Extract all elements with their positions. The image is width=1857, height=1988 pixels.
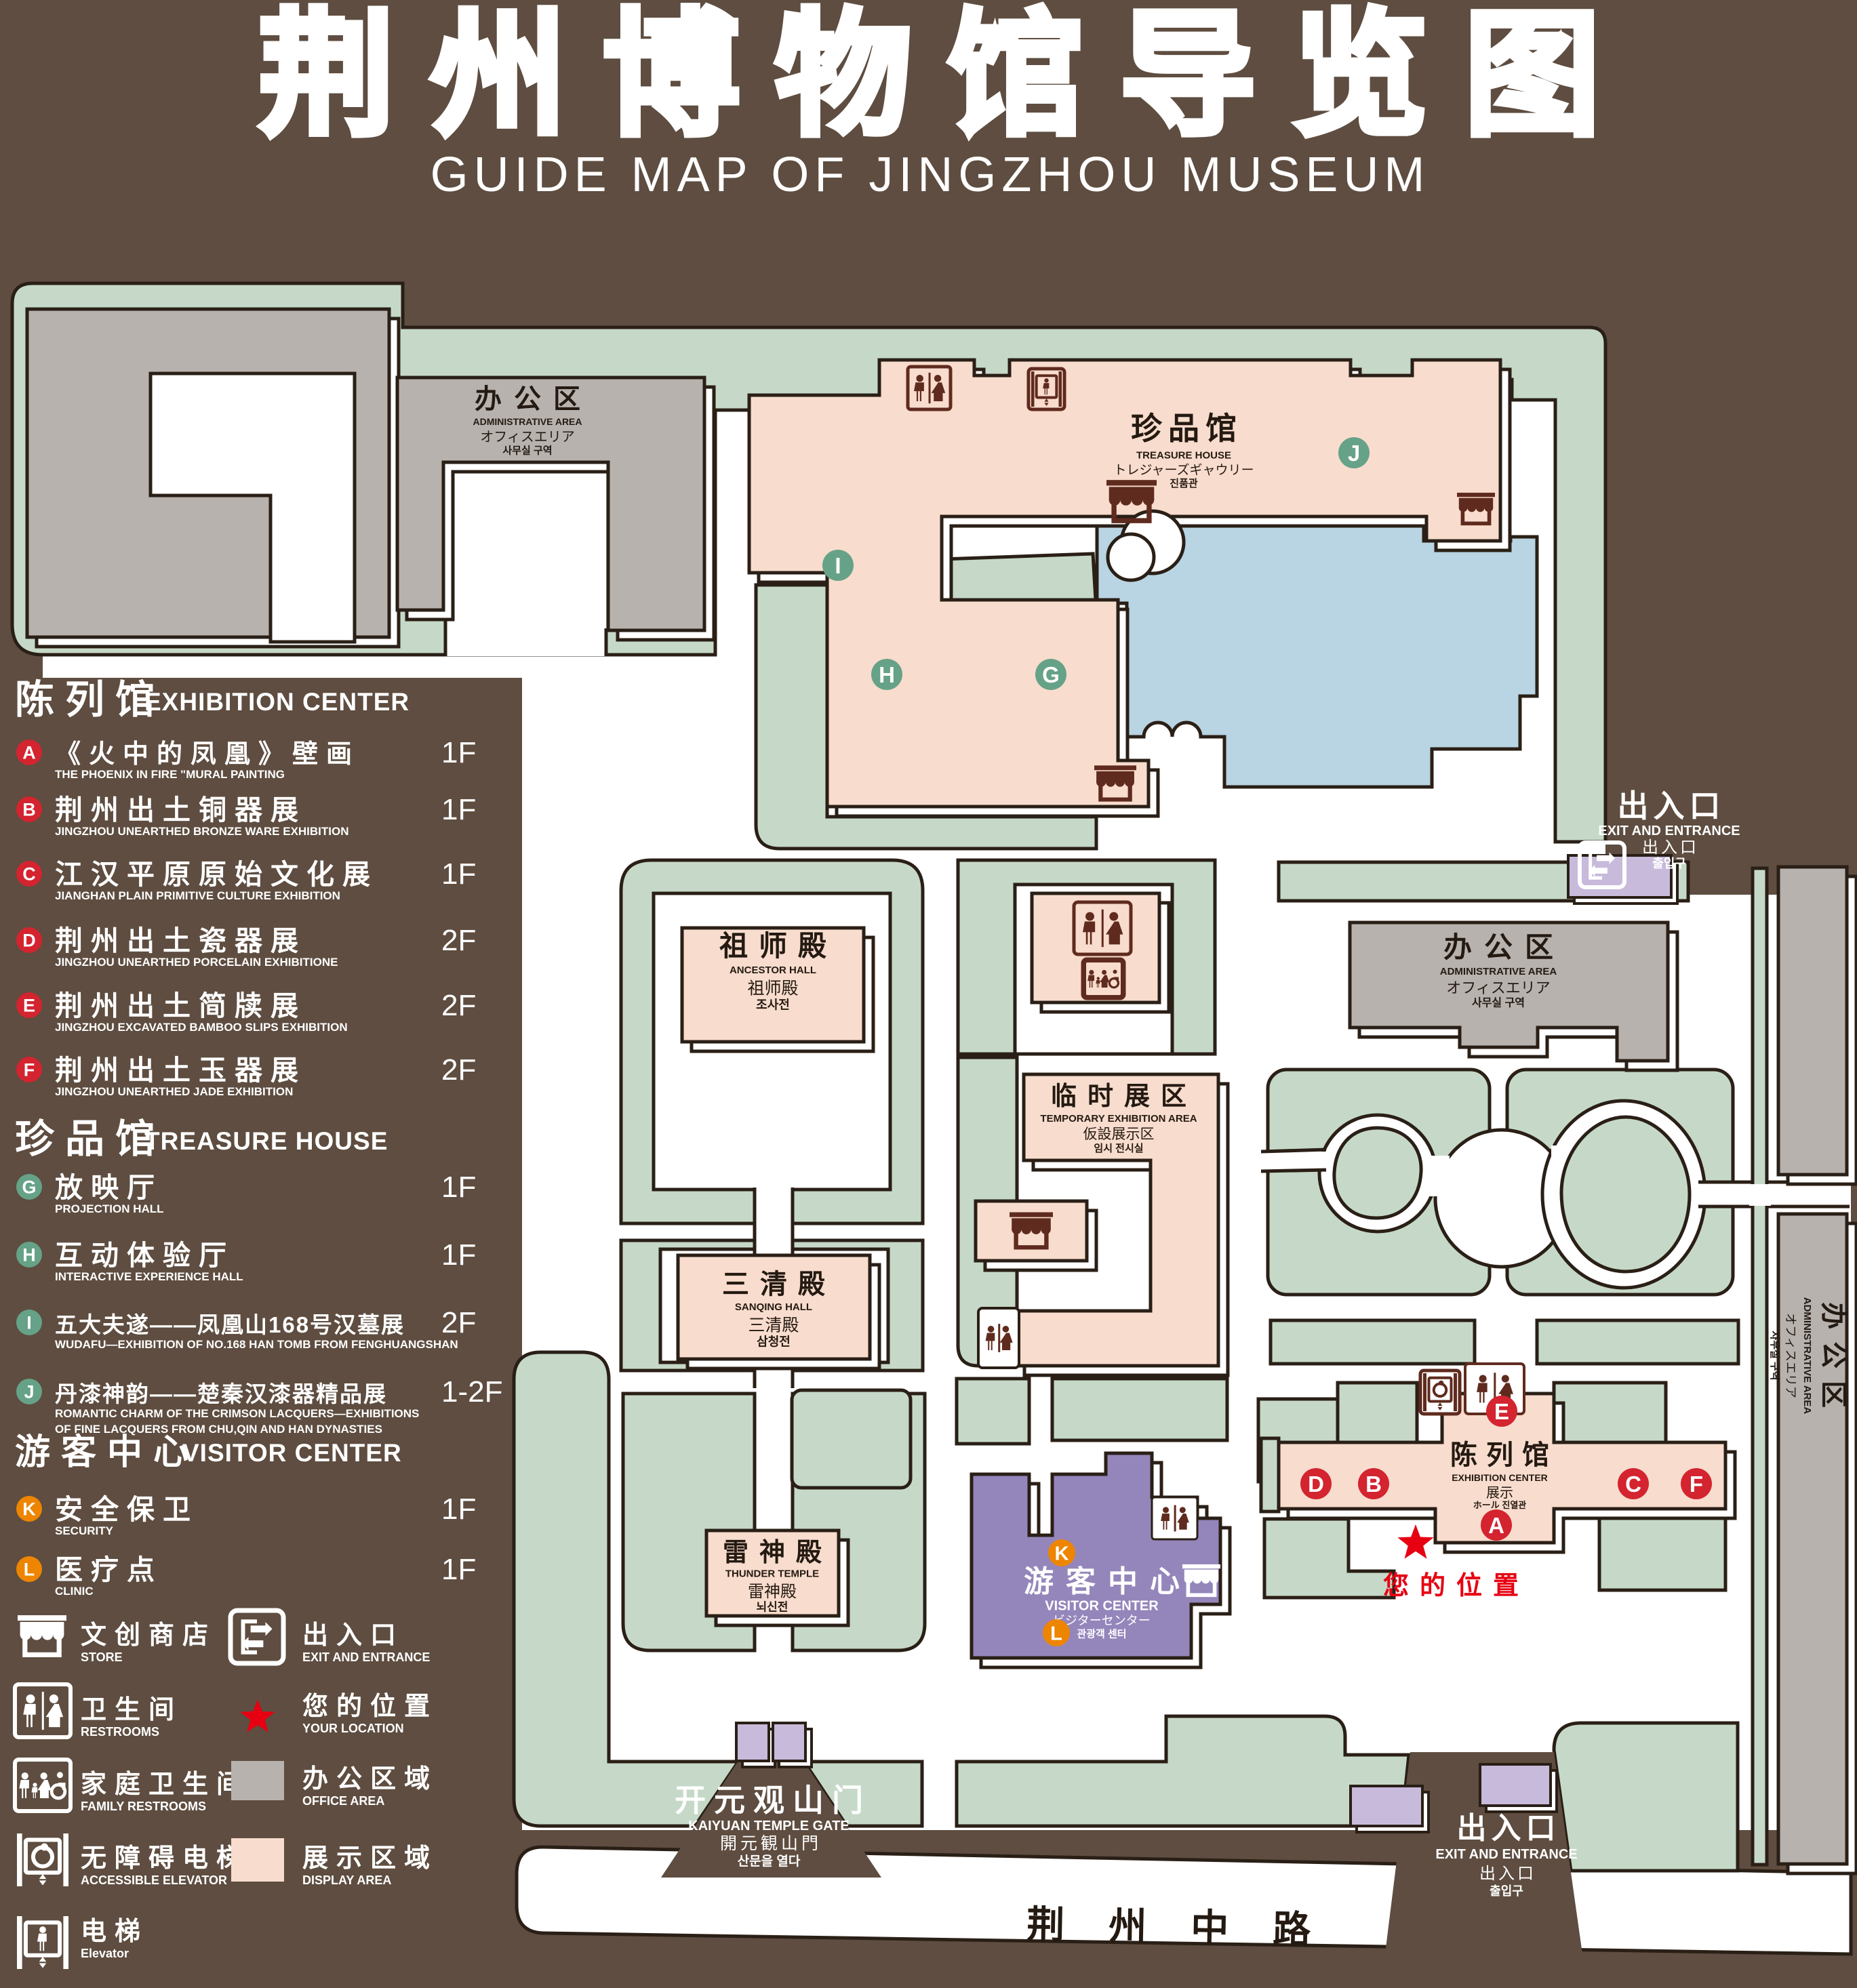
svg-text:展示: 展示 [1486, 1486, 1513, 1501]
svg-text:ADMINISTRATIVE AREA: ADMINISTRATIVE AREA [473, 416, 582, 427]
svg-text:游客中心: 游客中心 [1024, 1565, 1192, 1598]
svg-text:RESTROOMS: RESTROOMS [81, 1725, 159, 1739]
svg-text:사무실 구역: 사무실 구역 [1472, 996, 1525, 1009]
svg-text:THUNDER TEMPLE: THUNDER TEMPLE [725, 1568, 819, 1580]
svg-text:2F: 2F [441, 924, 476, 957]
svg-text:JINGZHOU UNEARTHED PORCELAIN E: JINGZHOU UNEARTHED PORCELAIN EXHIBITIONE [55, 956, 338, 969]
svg-text:E: E [1494, 1399, 1509, 1424]
svg-text:出入口: 出入口 [1642, 838, 1699, 857]
svg-text:출입구: 출입구 [1652, 856, 1686, 870]
svg-text:出入口: 出入口 [1457, 1812, 1561, 1845]
svg-text:ANCESTOR HALL: ANCESTOR HALL [730, 965, 816, 976]
svg-text:EXHIBITION CENTER: EXHIBITION CENTER [144, 688, 410, 716]
svg-text:KAIYUAN TEMPLE GATE: KAIYUAN TEMPLE GATE [688, 1819, 849, 1833]
svg-text:산문을 열다: 산문을 열다 [738, 1854, 801, 1869]
svg-text:オフィスエリア: オフィスエリア [1446, 979, 1551, 996]
svg-text:荆州出土铜器展: 荆州出土铜器展 [55, 794, 306, 826]
svg-text:三清殿: 三清殿 [748, 1316, 799, 1335]
svg-text:EXIT AND ENTRANCE: EXIT AND ENTRANCE [1598, 824, 1740, 838]
svg-text:仮設展示区: 仮設展示区 [1083, 1127, 1155, 1142]
svg-text:办公区域: 办公区域 [302, 1765, 438, 1793]
svg-text:JIANGHAN PLAIN PRIMITIVE CULTU: JIANGHAN PLAIN PRIMITIVE CULTURE EXHIBIT… [55, 889, 340, 902]
svg-text:FAMILY RESTROOMS: FAMILY RESTROOMS [81, 1800, 206, 1813]
svg-text:祖师殿: 祖师殿 [719, 930, 837, 962]
svg-text:出入口: 出入口 [302, 1621, 404, 1650]
svg-text:三清殿: 三清殿 [722, 1270, 836, 1299]
svg-text:STORE: STORE [81, 1650, 123, 1664]
svg-text:文创商店: 文创商店 [81, 1621, 216, 1650]
svg-text:展示区域: 展示区域 [302, 1844, 438, 1873]
svg-text:EXHIBITION CENTER: EXHIBITION CENTER [1452, 1472, 1548, 1483]
svg-text:B: B [1365, 1472, 1382, 1497]
svg-text:J: J [1348, 441, 1360, 466]
svg-text:オフィスエリア: オフィスエリア [1784, 1313, 1797, 1398]
svg-text:1F: 1F [441, 1171, 476, 1204]
svg-text:荆州出土瓷器展: 荆州出土瓷器展 [55, 925, 306, 956]
svg-text:2F: 2F [441, 1306, 476, 1339]
svg-text:陈列馆: 陈列馆 [15, 678, 165, 722]
svg-text:您的位置: 您的位置 [302, 1692, 438, 1721]
svg-text:VISITOR CENTER: VISITOR CENTER [182, 1439, 402, 1467]
svg-text:开元观山门: 开元观山门 [675, 1783, 871, 1818]
svg-text:荆州中路: 荆州中路 [1026, 1903, 1355, 1951]
svg-text:조사전: 조사전 [756, 998, 790, 1012]
svg-text:1-2F: 1-2F [441, 1375, 502, 1408]
svg-text:OFFICE AREA: OFFICE AREA [302, 1794, 384, 1808]
svg-text:JINGZHOU EXCAVATED BAMBOO SLIP: JINGZHOU EXCAVATED BAMBOO SLIPS EXHIBITI… [55, 1021, 348, 1034]
svg-text:TEMPORARY EXHIBITION AREA: TEMPORARY EXHIBITION AREA [1040, 1113, 1197, 1124]
svg-text:開元観山門: 開元観山門 [720, 1834, 822, 1853]
svg-text:SANQING HALL: SANQING HALL [735, 1301, 812, 1313]
svg-text:无障碍电梯: 无障碍电梯 [81, 1844, 250, 1873]
svg-text:荆州博物馆导览图: 荆州博物馆导览图 [259, 0, 1637, 151]
svg-text:祖师殿: 祖师殿 [747, 979, 798, 998]
svg-text:PROJECTION HALL: PROJECTION HALL [55, 1202, 164, 1215]
svg-text:사무실 구역: 사무실 구역 [1769, 1331, 1780, 1380]
svg-text:D: D [22, 931, 36, 951]
svg-text:EXIT AND ENTRANCE: EXIT AND ENTRANCE [302, 1650, 430, 1664]
svg-text:珍品馆: 珍品馆 [1131, 411, 1243, 446]
svg-text:TREASURE HOUSE: TREASURE HOUSE [144, 1127, 388, 1155]
svg-text:YOUR LOCATION: YOUR LOCATION [302, 1722, 404, 1735]
svg-text:办公区: 办公区 [475, 384, 593, 414]
svg-text:丹漆神韵——楚秦汉漆器精品展: 丹漆神韵——楚秦汉漆器精品展 [55, 1381, 387, 1406]
svg-text:ホール 진열관: ホール 진열관 [1473, 1500, 1527, 1510]
svg-text:진품관: 진품관 [1170, 478, 1198, 489]
svg-text:雷神殿: 雷神殿 [723, 1539, 833, 1567]
svg-text:出入口: 出入口 [1618, 788, 1725, 824]
svg-text:出入口: 出入口 [1479, 1865, 1536, 1883]
svg-text:オフィスエリア: オフィスエリア [480, 430, 575, 445]
svg-text:办公区: 办公区 [1443, 931, 1565, 963]
svg-text:1F: 1F [441, 1238, 476, 1272]
svg-text:江汉平原原始文化展: 江汉平原原始文化展 [55, 859, 378, 890]
svg-text:A: A [1488, 1513, 1504, 1538]
svg-text:SECURITY: SECURITY [55, 1524, 114, 1537]
svg-text:I: I [26, 1313, 32, 1333]
svg-text:トレジャーズギャウリー: トレジャーズギャウリー [1113, 463, 1254, 478]
svg-text:2F: 2F [441, 1053, 476, 1087]
svg-text:ACCESSIBLE ELEVATOR: ACCESSIBLE ELEVATOR [81, 1873, 227, 1887]
svg-text:INTERACTIVE EXPERIENCE HALL: INTERACTIVE EXPERIENCE HALL [55, 1270, 243, 1283]
svg-text:삼청전: 삼청전 [757, 1335, 791, 1348]
svg-text:E: E [23, 996, 35, 1016]
svg-text:사무실 구역: 사무실 구역 [502, 445, 552, 457]
svg-text:1F: 1F [441, 1493, 476, 1526]
svg-text:뇌신전: 뇌신전 [757, 1601, 788, 1614]
svg-text:G: G [1042, 662, 1060, 687]
svg-text:家庭卫生间: 家庭卫生间 [81, 1770, 250, 1799]
svg-text:JINGZHOU UNEARTHED JADE EXHIBI: JINGZHOU UNEARTHED JADE EXHIBITION [55, 1085, 293, 1098]
svg-text:H: H [22, 1245, 36, 1265]
svg-text:EXIT AND ENTRANCE: EXIT AND ENTRANCE [1435, 1847, 1577, 1862]
svg-text:陈列馆: 陈列馆 [1450, 1440, 1558, 1470]
svg-text:1F: 1F [441, 857, 476, 891]
svg-text:WUDAFU—EXHIBITION OF NO.168 HA: WUDAFU—EXHIBITION OF NO.168 HAN TOMB FRO… [55, 1338, 458, 1351]
svg-text:荆州出土简牍展: 荆州出土简牍展 [55, 990, 306, 1021]
svg-text:ADMINISTRATIVE AREA: ADMINISTRATIVE AREA [1801, 1297, 1813, 1415]
svg-text:2F: 2F [441, 989, 476, 1022]
svg-text:JINGZHOU UNEARTHED BRONZE WARE: JINGZHOU UNEARTHED BRONZE WARE EXHIBITIO… [55, 825, 349, 838]
svg-text:五大夫遂——凤凰山168号汉墓展: 五大夫遂——凤凰山168号汉墓展 [55, 1312, 405, 1337]
svg-text:游客中心: 游客中心 [15, 1433, 199, 1472]
svg-text:DISPLAY AREA: DISPLAY AREA [302, 1873, 391, 1887]
svg-text:F: F [1690, 1472, 1703, 1497]
svg-text:L: L [24, 1560, 35, 1580]
svg-text:F: F [24, 1060, 35, 1080]
svg-text:1F: 1F [441, 793, 476, 826]
svg-text:办公区: 办公区 [1818, 1302, 1848, 1420]
svg-text:H: H [879, 662, 895, 687]
svg-text:珍品馆: 珍品馆 [15, 1117, 165, 1161]
svg-text:1F: 1F [441, 736, 476, 769]
svg-text:G: G [22, 1177, 36, 1198]
svg-text:VISITOR CENTER: VISITOR CENTER [1045, 1598, 1159, 1613]
svg-text:D: D [1308, 1472, 1324, 1497]
svg-text:J: J [24, 1382, 34, 1402]
svg-text:医疗点: 医疗点 [55, 1554, 163, 1585]
svg-text:电梯: 电梯 [81, 1918, 148, 1946]
svg-text:GUIDE MAP OF JINGZHOU MUSEUM: GUIDE MAP OF JINGZHOU MUSEUM [431, 148, 1431, 202]
svg-text:安全保卫: 安全保卫 [55, 1494, 199, 1525]
svg-text:관광객 센터: 관광객 센터 [1077, 1628, 1126, 1640]
svg-text:您的位置: 您的位置 [1383, 1572, 1530, 1600]
svg-text:ROMANTIC CHARM OF THE CRIMSON: ROMANTIC CHARM OF THE CRIMSON LACQUERS—E… [55, 1407, 419, 1420]
svg-text:互动体验厅: 互动体验厅 [55, 1240, 235, 1271]
svg-text:放映厅: 放映厅 [55, 1172, 163, 1203]
svg-text:출입구: 출입구 [1490, 1884, 1523, 1898]
svg-text:L: L [1050, 1623, 1062, 1644]
svg-text:《火中的凤凰》壁画: 《火中的凤凰》壁画 [55, 740, 360, 769]
svg-text:卫生间: 卫生间 [81, 1696, 182, 1724]
svg-text:1F: 1F [441, 1553, 476, 1586]
svg-text:CLINIC: CLINIC [55, 1585, 94, 1598]
svg-text:Elevator: Elevator [81, 1947, 129, 1960]
svg-text:임시 전시실: 임시 전시실 [1094, 1143, 1143, 1154]
svg-text:K: K [1055, 1543, 1069, 1564]
svg-text:B: B [22, 800, 36, 820]
svg-text:TREASURE HOUSE: TREASURE HOUSE [1136, 450, 1231, 462]
svg-text:THE PHOENIX IN FIRE "MURAL PAI: THE PHOENIX IN FIRE "MURAL PAINTING [55, 768, 285, 781]
svg-text:C: C [22, 864, 36, 885]
svg-text:K: K [22, 1499, 36, 1520]
svg-text:C: C [1625, 1472, 1641, 1497]
svg-text:A: A [22, 743, 36, 763]
svg-text:ADMINISTRATIVE AREA: ADMINISTRATIVE AREA [1440, 966, 1557, 977]
svg-text:雷神殿: 雷神殿 [748, 1583, 797, 1601]
svg-text:临时展区: 临时展区 [1051, 1082, 1197, 1111]
svg-text:I: I [835, 553, 841, 578]
svg-text:荆州出土玉器展: 荆州出土玉器展 [55, 1055, 306, 1086]
